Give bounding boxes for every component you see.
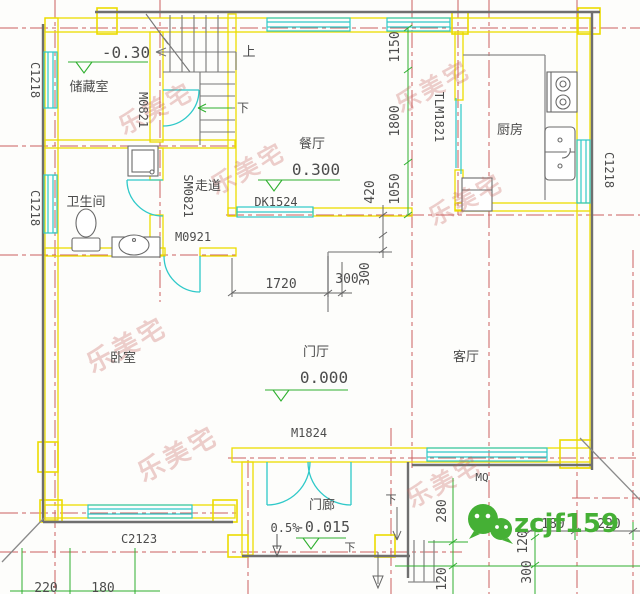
level-dining: 0.300 (292, 160, 340, 179)
stove (547, 72, 577, 112)
dim-1720: 1720 (265, 277, 296, 292)
code-c1218-left-mid: C1218 (28, 190, 42, 226)
room-label-living: 客厅 (453, 349, 479, 365)
wall-lines (45, 14, 592, 555)
dim-1800: 1800 (388, 105, 403, 136)
bathroom-sink (112, 235, 160, 257)
dim-220-left: 220 (34, 581, 57, 594)
level-triangle-dining (258, 180, 340, 191)
wechat-eye-icon (475, 514, 480, 519)
level-porch: -0.015 (296, 518, 350, 536)
wall-columns (38, 8, 600, 557)
room-label-corridor: 走道 (195, 179, 221, 194)
kitchen-sink (545, 127, 575, 180)
level-triangle-hall (265, 390, 348, 401)
code-mq: MQ (475, 471, 488, 484)
dim-300-horizontal: 300 (335, 272, 358, 287)
door-sm0821-swing (127, 180, 163, 216)
toilet (72, 209, 100, 251)
stair-labels: 上 下 下 下 (237, 45, 397, 554)
porch-down-label-2: 下 (345, 541, 356, 554)
watermark-stamp: 乐美宅 (114, 78, 199, 141)
stair-up-arrow (156, 48, 236, 70)
dim-300-c: 300 (520, 560, 535, 583)
window-c1218-right (577, 140, 590, 203)
dim-180-left: 180 (91, 581, 114, 594)
room-label-porch: 门廊 (309, 497, 335, 513)
porch-down-label-1: 下 (386, 493, 397, 506)
dim-420: 420 (363, 180, 378, 203)
level-storage: -0.30 (102, 43, 150, 62)
code-m0821: M0821 (136, 92, 150, 128)
room-label-bathroom: 卫生间 (66, 195, 105, 210)
eave-diagonal-right (580, 438, 640, 500)
code-c1218-right: C1218 (602, 152, 616, 188)
dim-1150: 1150 (388, 31, 403, 62)
level-triangle-storage (68, 62, 148, 73)
floor-plan-page: 乐美宅 乐美宅 乐美宅 乐美宅 乐美宅 乐美宅 乐美宅 储藏室 卫生间 卧室 走… (0, 0, 640, 594)
dim-1050: 1050 (388, 173, 403, 204)
code-dk1524: DK1524 (254, 195, 297, 209)
room-label-hall: 门厅 (303, 345, 329, 360)
slope-arrow (273, 534, 281, 556)
window-top-dining (267, 18, 350, 31)
code-m1824: M1824 (291, 426, 327, 440)
door-swings (127, 90, 351, 505)
window-top-kitchen (387, 18, 450, 31)
code-c1218-left-top: C1218 (28, 62, 42, 98)
stair-break-line (146, 14, 190, 72)
code-sm0821: SM0821 (181, 174, 195, 217)
room-label-kitchen: 厨房 (497, 122, 523, 138)
wechat-eye-icon (486, 514, 491, 519)
watermark-stamp: 乐美宅 (132, 420, 223, 488)
floor-plan-canvas: 乐美宅 乐美宅 乐美宅 乐美宅 乐美宅 乐美宅 乐美宅 储藏室 卫生间 卧室 走… (0, 0, 640, 594)
level-markers (68, 62, 348, 549)
door-m1824-left-swing (267, 462, 310, 505)
level-slope: 0.5% (271, 521, 301, 535)
eave-diagonal-left (2, 518, 44, 562)
stair-down-arrow (198, 104, 232, 112)
watermark-stamp: 乐美宅 (81, 311, 172, 379)
stair-down-label: 下 (237, 101, 249, 115)
wechat-eye-icon (504, 525, 508, 529)
dim-step-vertical (379, 205, 387, 258)
level-triangle-porch (296, 538, 346, 549)
room-label-dining: 餐厅 (299, 136, 325, 152)
wechat-logo: zcjf159 (468, 504, 619, 544)
code-tlm1821: TLM1821 (432, 92, 446, 143)
code-m0921: M0921 (175, 230, 211, 244)
window-mq-living (427, 448, 547, 461)
dim-120-a: 120 (435, 567, 450, 590)
window-c2123-bedroom (88, 505, 192, 518)
door-m0921-swing (164, 256, 200, 292)
level-hall: 0.000 (300, 368, 348, 387)
wechat-id-text: zcjf159 (514, 509, 619, 539)
code-c2123: C2123 (121, 532, 157, 546)
room-label-bedroom: 卧室 (110, 350, 136, 366)
stair-up-label: 上 (242, 45, 255, 60)
wechat-bubble-small-icon (490, 518, 512, 540)
water-heater (128, 146, 158, 176)
code-labels: C1218 C1218 C1218 M0821 SM0821 TLM1821 M… (28, 62, 616, 546)
dim-300-vertical: 300 (358, 262, 373, 285)
dim-280: 280 (435, 499, 450, 522)
room-label-storage: 储藏室 (69, 79, 108, 95)
wechat-eye-icon (495, 525, 499, 529)
windows (44, 18, 590, 518)
